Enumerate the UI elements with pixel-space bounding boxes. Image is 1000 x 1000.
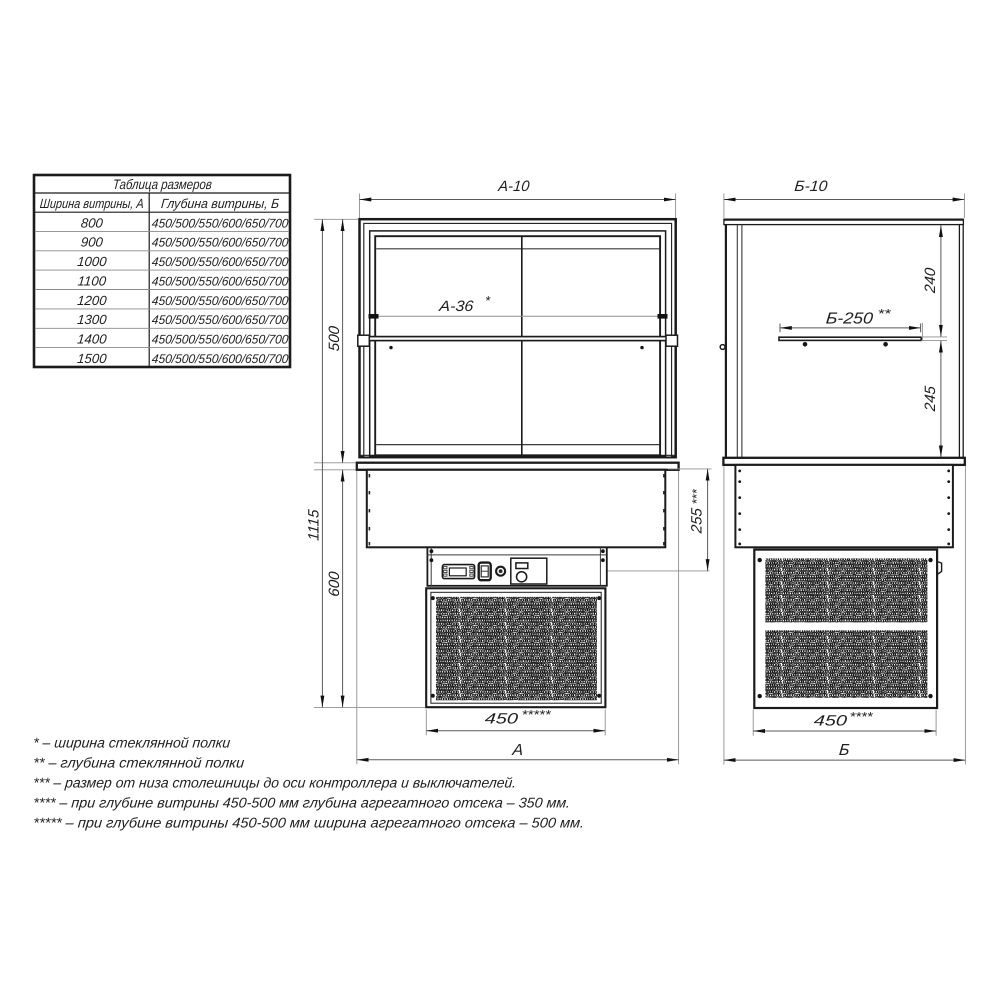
svg-text:450/500/550/600/650/700: 450/500/550/600/650/700 — [151, 274, 289, 288]
svg-text:***: *** — [689, 488, 704, 505]
svg-text:Глубина витрины, Б: Глубина витрины, Б — [161, 196, 281, 211]
svg-text:450: 450 — [813, 713, 848, 730]
svg-text:Б-250: Б-250 — [825, 310, 874, 328]
svg-text:*****: ***** — [521, 707, 552, 722]
svg-text:***** – при глубине витрины 45: ***** – при глубине витрины 450-500 мм ш… — [32, 815, 584, 831]
svg-text:245: 245 — [922, 385, 939, 413]
svg-text:А-10: А-10 — [497, 178, 531, 195]
svg-text:1300: 1300 — [77, 312, 108, 327]
svg-text:Таблица размеров: Таблица размеров — [112, 176, 212, 192]
svg-text:А: А — [511, 741, 524, 759]
svg-text:450: 450 — [484, 710, 519, 727]
svg-text:255: 255 — [689, 507, 706, 535]
svg-text:Б: Б — [838, 741, 850, 759]
svg-text:450/500/550/600/650/700: 450/500/550/600/650/700 — [151, 333, 289, 347]
svg-text:1400: 1400 — [77, 332, 108, 347]
svg-text:**: ** — [877, 306, 892, 321]
svg-text:Б-10: Б-10 — [794, 178, 829, 195]
svg-text:450/500/550/600/650/700: 450/500/550/600/650/700 — [151, 236, 289, 250]
svg-text:**** – при глубине витрины 450: **** – при глубине витрины 450-500 мм гл… — [32, 795, 570, 811]
svg-text:** – глубина стеклянной полки: ** – глубина стеклянной полки — [32, 755, 244, 771]
svg-text:1100: 1100 — [77, 273, 107, 288]
svg-text:*** – размер от низа столешниц: *** – размер от низа столешницы до оси к… — [32, 775, 516, 791]
svg-text:1500: 1500 — [77, 351, 108, 366]
svg-text:450/500/550/600/650/700: 450/500/550/600/650/700 — [151, 313, 289, 327]
svg-text:А-36: А-36 — [438, 298, 475, 315]
svg-text:450/500/550/600/650/700: 450/500/550/600/650/700 — [151, 352, 289, 366]
svg-text:600: 600 — [326, 570, 343, 597]
svg-text:240: 240 — [922, 267, 939, 295]
svg-text:1000: 1000 — [77, 254, 108, 269]
svg-text:500: 500 — [326, 325, 343, 352]
svg-text:450/500/550/600/650/700: 450/500/550/600/650/700 — [151, 294, 289, 308]
svg-text:800: 800 — [80, 215, 104, 230]
svg-text:Ширина витрины, А: Ширина витрины, А — [39, 196, 144, 211]
svg-text:****: **** — [849, 709, 874, 724]
svg-text:1200: 1200 — [77, 293, 108, 308]
svg-text:1115: 1115 — [306, 508, 323, 541]
svg-text:450/500/550/600/650/700: 450/500/550/600/650/700 — [151, 255, 289, 269]
svg-text:900: 900 — [80, 235, 104, 250]
svg-text:* – ширина стеклянной полки: * – ширина стеклянной полки — [32, 735, 230, 751]
svg-text:450/500/550/600/650/700: 450/500/550/600/650/700 — [151, 216, 289, 230]
